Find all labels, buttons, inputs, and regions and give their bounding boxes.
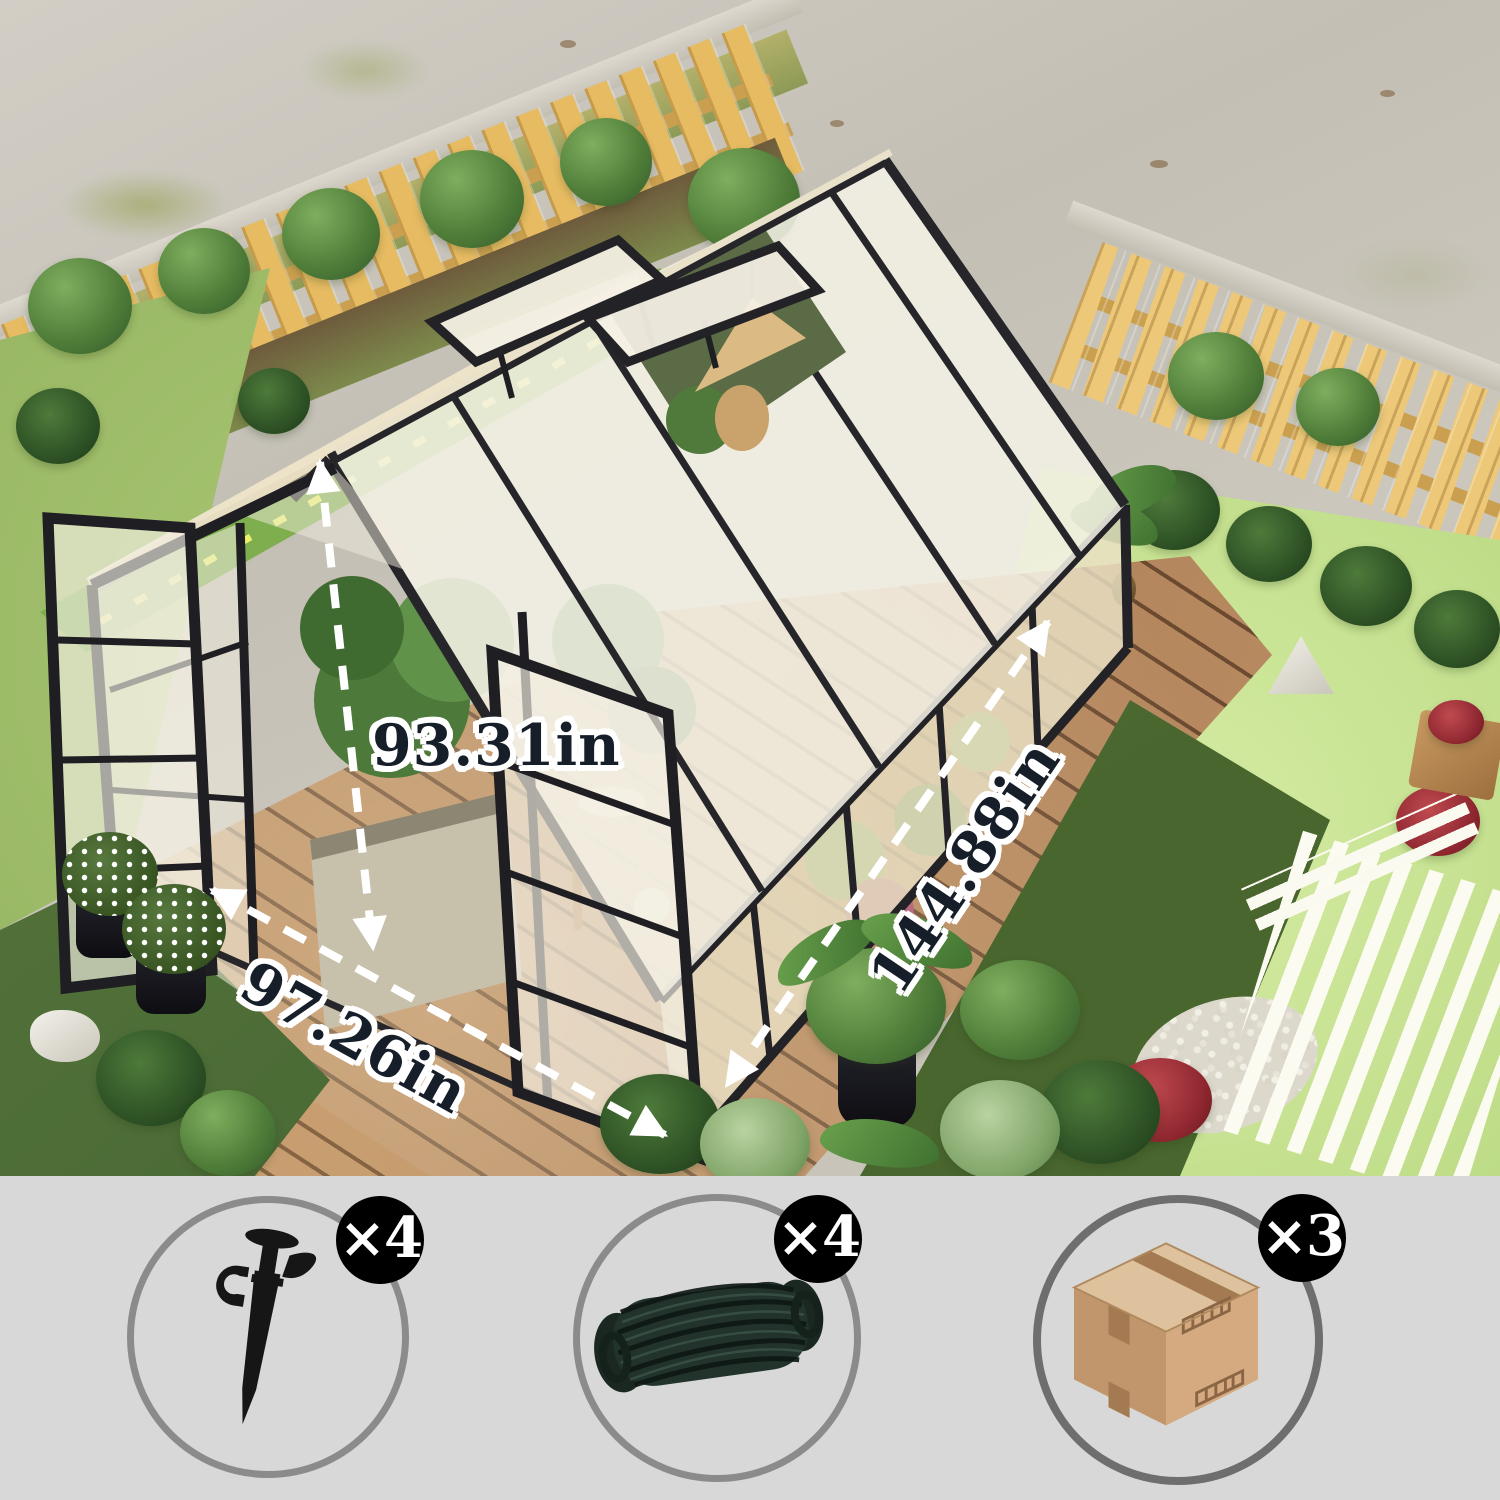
dimension-lines [0, 0, 1500, 1176]
rope-icon [585, 1256, 835, 1420]
box-count-badge: ×3 [1258, 1194, 1346, 1282]
included-parts-band: ×4 [0, 1176, 1500, 1500]
box-icon [1051, 1226, 1281, 1445]
stake-count: ×4 [339, 1210, 421, 1266]
height-dimension-line [320, 462, 373, 948]
rope-count: ×4 [777, 1209, 859, 1265]
height-dimension-label: 93.31in [372, 712, 621, 779]
rope-count-badge: ×4 [774, 1195, 862, 1283]
stake-icon [186, 1212, 336, 1446]
box-count: ×3 [1261, 1208, 1343, 1264]
backyard-scene: 93.31in 97.26in 144.88in [0, 0, 1500, 1176]
stake-count-badge: ×4 [336, 1196, 424, 1284]
product-image: 93.31in 97.26in 144.88in ×4 [0, 0, 1500, 1500]
